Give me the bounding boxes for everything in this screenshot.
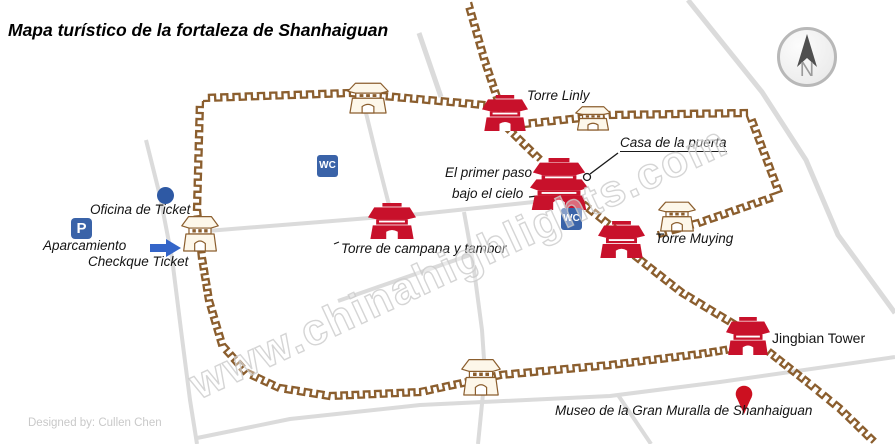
map-canvas	[0, 0, 895, 444]
label-torre-linly: Torre Linly	[527, 88, 590, 103]
label-el-primer-paso-line2: bajo el cielo	[452, 186, 523, 201]
north-approach-road	[419, 33, 441, 97]
museum-pin-icon	[736, 386, 753, 403]
ticket-office-dot-marker	[157, 187, 174, 204]
gate-tower-icon	[576, 107, 611, 130]
gate-tower-icon	[659, 202, 695, 231]
gate-tower-icon	[182, 217, 218, 251]
compass: N	[777, 27, 837, 87]
gate-tower-icon	[462, 360, 500, 395]
label-checkque-ticket: Checkque Ticket	[88, 254, 188, 269]
fortress-north-wall	[203, 90, 485, 108]
label-jingbian-tower: Jingbian Tower	[772, 330, 865, 346]
fortress-tower-icon	[482, 95, 528, 131]
wc-icon: WC	[317, 155, 338, 177]
compass-north-label: N	[800, 59, 814, 82]
label-oficina-de-ticket: Oficina de Ticket	[90, 202, 190, 217]
label-aparcamiento: Aparcamiento	[43, 238, 126, 253]
fortress-tower-icon	[368, 203, 416, 239]
fortress-tower-icon	[598, 221, 645, 258]
label-museo: Museo de la Gran Muralla de Shanhaiguan	[555, 403, 812, 418]
designer-credit: Designed by: Cullen Chen	[28, 417, 162, 429]
parking-icon: P	[71, 218, 92, 239]
label-el-primer-paso-line1: El primer paso	[445, 165, 532, 180]
pointer-line	[334, 242, 339, 244]
north-gate-road	[366, 113, 389, 205]
west-road	[146, 140, 197, 444]
label-torre-muying: Torre Muying	[655, 231, 733, 246]
shanhaiguan-tourist-map: Mapa turístico de la fortaleza de Shanha…	[0, 0, 895, 444]
gate-tower-icon	[348, 83, 388, 113]
fortress-tower-icon	[726, 317, 770, 355]
east-wall-lower	[624, 250, 736, 327]
map-title: Mapa turístico de la fortaleza de Shanha…	[8, 20, 388, 41]
